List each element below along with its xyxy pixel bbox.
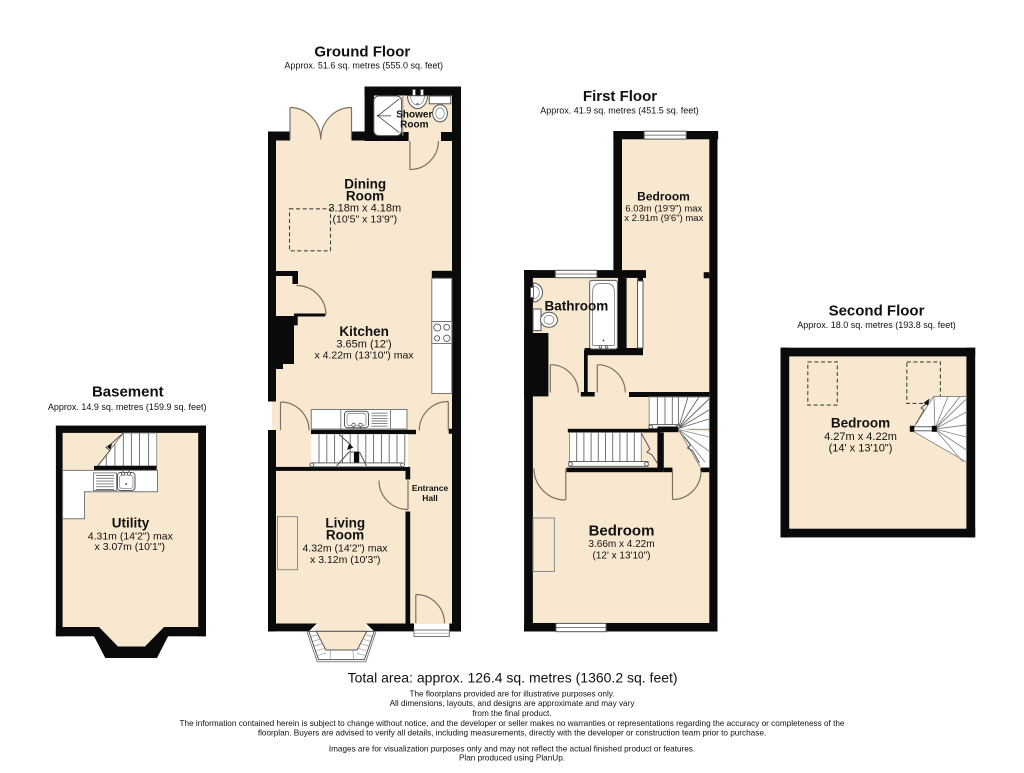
svg-text:All dimensions, layouts, and d: All dimensions, layouts, and designs are… — [390, 699, 636, 708]
svg-text:Room: Room — [326, 528, 364, 543]
svg-text:x 4.22m (13'10") max: x 4.22m (13'10") max — [314, 350, 414, 362]
svg-text:Ground Floor: Ground Floor — [314, 44, 410, 61]
svg-text:The information contained here: The information contained herein is subj… — [180, 719, 845, 728]
svg-text:x 3.07m (10'1"): x 3.07m (10'1") — [95, 541, 166, 553]
svg-text:floorplan. Buyers are advised: floorplan. Buyers are advised to verify … — [258, 729, 766, 738]
svg-text:Room: Room — [346, 189, 384, 204]
svg-text:Approx. 41.9 sq. metres (451.5: Approx. 41.9 sq. metres (451.5 sq. feet) — [540, 106, 699, 116]
svg-text:4.32m (14'2") max: 4.32m (14'2") max — [302, 543, 388, 555]
svg-text:Approx. 51.6 sq. metres (555.0: Approx. 51.6 sq. metres (555.0 sq. feet) — [284, 61, 443, 71]
svg-text:Hall: Hall — [422, 493, 438, 503]
svg-text:First Floor: First Floor — [583, 88, 657, 105]
svg-text:Bedroom: Bedroom — [589, 523, 655, 540]
svg-text:4.27m x 4.22m: 4.27m x 4.22m — [824, 431, 897, 443]
svg-text:Plan produced using PlanUp.: Plan produced using PlanUp. — [459, 754, 565, 763]
svg-text:from the final product.: from the final product. — [472, 709, 551, 718]
svg-text:Room: Room — [400, 120, 428, 131]
svg-text:Bedroom: Bedroom — [637, 190, 690, 204]
svg-text:Kitchen: Kitchen — [339, 324, 389, 339]
svg-text:Approx. 18.0 sq. metres (193.8: Approx. 18.0 sq. metres (193.8 sq. feet) — [797, 320, 956, 330]
svg-text:3.66m x 4.22m: 3.66m x 4.22m — [588, 539, 654, 550]
svg-text:(12' x 13'10"): (12' x 13'10") — [593, 551, 651, 562]
svg-text:Approx. 14.9 sq. metres (159.9: Approx. 14.9 sq. metres (159.9 sq. feet) — [48, 402, 207, 412]
svg-text:Total area: approx. 126.4 sq.: Total area: approx. 126.4 sq. metres (13… — [348, 670, 678, 686]
svg-text:Images are for visualization p: Images are for visualization purposes on… — [329, 745, 695, 754]
svg-text:x 3.12m (10'3"): x 3.12m (10'3") — [310, 554, 381, 566]
svg-text:Bedroom: Bedroom — [831, 416, 890, 431]
svg-text:Second Floor: Second Floor — [829, 303, 925, 320]
svg-text:(10'5" x 13'9"): (10'5" x 13'9") — [333, 214, 398, 226]
svg-text:Bathroom: Bathroom — [545, 299, 609, 314]
svg-text:Basement: Basement — [92, 384, 164, 401]
svg-text:Entrance: Entrance — [412, 483, 449, 493]
svg-text:Utility: Utility — [112, 516, 150, 531]
svg-text:x 2.91m (9'6") max: x 2.91m (9'6") max — [624, 213, 703, 224]
svg-text:The floorplans provided are fo: The floorplans provided are for illustra… — [409, 690, 614, 699]
svg-text:(14' x 13'10"): (14' x 13'10") — [829, 443, 893, 455]
